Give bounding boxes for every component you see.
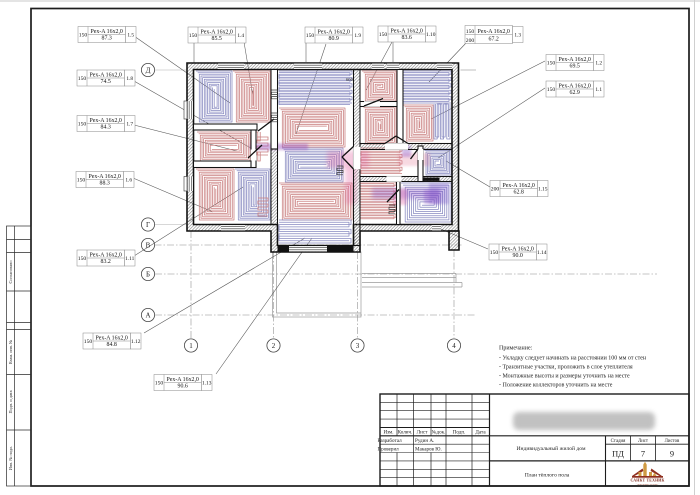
svg-text:150: 150 xyxy=(78,256,87,262)
svg-text:80.9: 80.9 xyxy=(329,36,339,42)
svg-text:Pex-A 16x2,0: Pex-A 16x2,0 xyxy=(317,29,349,35)
svg-text:88.3: 88.3 xyxy=(100,181,110,187)
svg-text:Pex-A 16x2,0: Pex-A 16x2,0 xyxy=(90,29,122,35)
svg-text:1.2: 1.2 xyxy=(595,61,602,67)
svg-text:74.5: 74.5 xyxy=(101,79,111,85)
svg-text:Индивидуальный жилой дом: Индивидуальный жилой дом xyxy=(516,445,585,452)
svg-text:Колич.: Колич. xyxy=(398,430,413,436)
svg-text:Pex-A 16x2,0: Pex-A 16x2,0 xyxy=(89,118,121,124)
svg-text:- Положение коллекторов уточн: - Положение коллекторов уточнить на мест… xyxy=(499,383,613,389)
svg-text:~ инженерные системы ~: ~ инженерные системы ~ xyxy=(636,484,660,486)
svg-text:150: 150 xyxy=(78,76,87,82)
svg-text:Pex-A 16x2,0: Pex-A 16x2,0 xyxy=(501,246,533,252)
svg-text:1.14: 1.14 xyxy=(537,250,547,256)
svg-text:Лист: Лист xyxy=(417,430,428,436)
svg-text:1.12: 1.12 xyxy=(131,339,141,345)
svg-text:85.5: 85.5 xyxy=(212,36,222,42)
svg-text:600: 600 xyxy=(346,77,354,82)
svg-text:Pex-A 16x2,0: Pex-A 16x2,0 xyxy=(558,57,590,63)
svg-text:Pex-A 16x2,0: Pex-A 16x2,0 xyxy=(89,72,121,78)
svg-text:Pex-A 16x2,0: Pex-A 16x2,0 xyxy=(558,83,590,89)
svg-text:150: 150 xyxy=(155,381,164,387)
svg-text:САНКТ ТЕХНИК: САНКТ ТЕХНИК xyxy=(630,479,664,483)
svg-text:Разработал: Разработал xyxy=(378,437,403,444)
svg-text:Согласовано: Согласовано xyxy=(8,261,13,284)
svg-text:3: 3 xyxy=(356,342,360,350)
svg-text:Рудин А.: Рудин А. xyxy=(415,438,434,444)
svg-text:150: 150 xyxy=(379,32,388,38)
svg-text:Изм.: Изм. xyxy=(383,430,393,436)
svg-text:Листов: Листов xyxy=(665,439,680,444)
svg-text:Взам. инв. №: Взам. инв. № xyxy=(8,340,13,364)
svg-text:Примечание:: Примечание: xyxy=(499,346,533,352)
svg-text:150: 150 xyxy=(490,250,499,256)
svg-text:1.7: 1.7 xyxy=(126,122,133,128)
svg-text:1.8: 1.8 xyxy=(126,76,133,82)
svg-text:83.2: 83.2 xyxy=(101,259,111,265)
svg-text:67.2: 67.2 xyxy=(489,37,499,43)
svg-text:Макаров Ю.: Макаров Ю. xyxy=(415,446,442,452)
svg-text:1.6: 1.6 xyxy=(125,178,132,184)
svg-text:90.6: 90.6 xyxy=(178,384,188,390)
svg-text:Дата: Дата xyxy=(475,430,486,436)
svg-text:1: 1 xyxy=(189,342,193,350)
svg-text:150: 150 xyxy=(79,33,88,39)
svg-text:Б: Б xyxy=(146,270,150,278)
svg-text:87.3: 87.3 xyxy=(102,36,112,42)
svg-text:Pex-A 16x2,0: Pex-A 16x2,0 xyxy=(200,29,232,35)
svg-text:Подп. и дата: Подп. и дата xyxy=(8,390,13,413)
svg-text:1.11: 1.11 xyxy=(125,256,135,262)
svg-text:150: 150 xyxy=(77,178,86,184)
svg-text:4: 4 xyxy=(452,342,456,350)
svg-text:2: 2 xyxy=(272,342,276,350)
svg-text:1.5: 1.5 xyxy=(127,33,134,39)
svg-text:1.9: 1.9 xyxy=(354,33,361,39)
svg-text:№док.: №док. xyxy=(432,430,446,436)
svg-text:Pex-A 16x2,0: Pex-A 16x2,0 xyxy=(166,377,198,383)
svg-text:Лист: Лист xyxy=(638,439,649,444)
svg-text:Pex-A 16x2,0: Pex-A 16x2,0 xyxy=(95,335,127,341)
svg-text:150: 150 xyxy=(189,33,198,39)
svg-text:9: 9 xyxy=(670,450,674,459)
svg-text:Pex-A 16x2,0: Pex-A 16x2,0 xyxy=(502,183,534,189)
svg-text:- Монтажные высоты и размеры: - Монтажные высоты и размеры уточнить на… xyxy=(499,374,630,380)
svg-text:150: 150 xyxy=(547,87,556,93)
svg-text:1.13: 1.13 xyxy=(202,381,212,387)
svg-text:Д: Д xyxy=(146,66,151,74)
svg-text:84.3: 84.3 xyxy=(101,125,111,131)
svg-text:69.5: 69.5 xyxy=(570,64,580,70)
svg-text:Pex-A 16x2,0: Pex-A 16x2,0 xyxy=(390,28,422,34)
svg-text:84.8: 84.8 xyxy=(107,342,117,348)
svg-text:Стадия: Стадия xyxy=(611,439,626,444)
svg-text:62.9: 62.9 xyxy=(570,90,580,96)
svg-text:Подп.: Подп. xyxy=(453,430,466,436)
svg-text:А: А xyxy=(145,311,150,319)
svg-text:План тёплого пола: План тёплого пола xyxy=(525,472,570,478)
svg-text:1.4: 1.4 xyxy=(237,33,244,39)
svg-text:7: 7 xyxy=(641,450,645,459)
svg-text:1.15: 1.15 xyxy=(538,187,548,193)
svg-text:- Транзитные участки, проложи: - Транзитные участки, проложить в слое у… xyxy=(499,365,633,371)
svg-text:90.0: 90.0 xyxy=(513,253,523,259)
svg-text:- Укладку следует начинать на: - Укладку следует начинать на расстоянии… xyxy=(499,356,647,362)
svg-text:Инв. № подл.: Инв. № подл. xyxy=(8,446,13,470)
svg-text:Pex-A 16x2,0: Pex-A 16x2,0 xyxy=(88,174,120,180)
svg-text:83.6: 83.6 xyxy=(402,35,412,41)
svg-text:150: 150 xyxy=(84,339,93,345)
svg-text:Pex-A 16x2,0: Pex-A 16x2,0 xyxy=(477,29,509,35)
svg-text:Pex-A 16x2,0: Pex-A 16x2,0 xyxy=(89,252,121,258)
svg-text:150: 150 xyxy=(78,122,87,128)
svg-text:200: 200 xyxy=(491,187,500,193)
svg-text:150: 150 xyxy=(547,61,556,67)
svg-text:62.8: 62.8 xyxy=(514,190,524,196)
svg-text:1.1: 1.1 xyxy=(595,87,602,93)
svg-text:200: 200 xyxy=(466,38,475,44)
svg-text:1.3: 1.3 xyxy=(514,33,521,39)
svg-text:Г: Г xyxy=(146,221,150,229)
svg-text:1.10: 1.10 xyxy=(426,32,436,38)
svg-text:150: 150 xyxy=(306,33,315,39)
svg-text:Проверил: Проверил xyxy=(378,446,400,452)
svg-text:ПД: ПД xyxy=(612,450,624,459)
svg-text:150: 150 xyxy=(466,29,475,35)
